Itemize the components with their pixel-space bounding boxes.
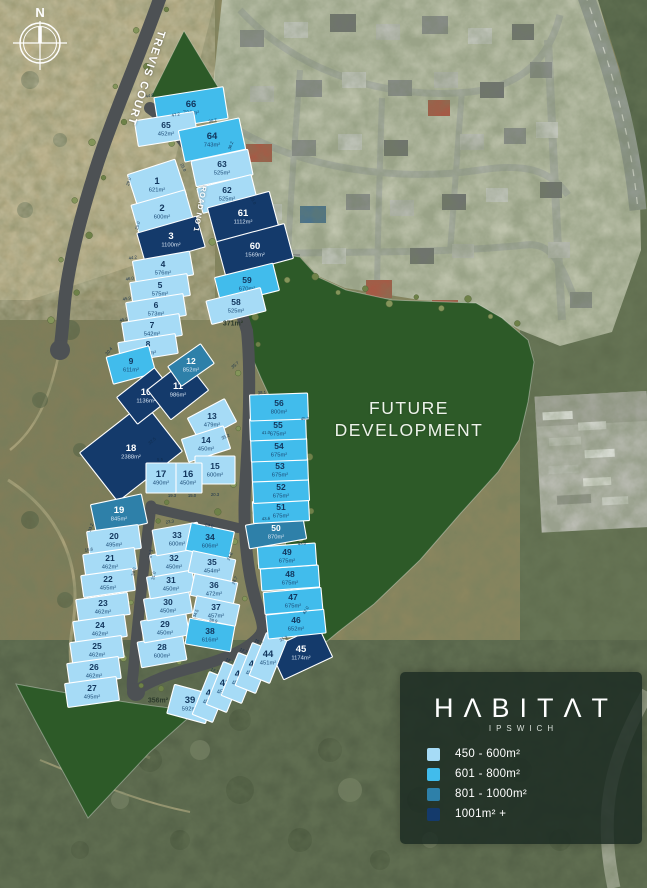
legend-label: 450 - 600m² xyxy=(455,748,520,760)
lot-number: 35 xyxy=(207,557,217,567)
lot-area: 576m² xyxy=(155,271,172,277)
lot-area: 455m² xyxy=(100,586,117,592)
street-tree xyxy=(214,509,221,516)
lot-number: 53 xyxy=(275,461,285,471)
lot-number: 4 xyxy=(161,259,166,269)
future-development-label: FUTURE DEVELOPMENT xyxy=(335,397,484,441)
lot-number: 38 xyxy=(205,626,215,636)
lot-number: 32 xyxy=(169,553,179,563)
lot-number: 14 xyxy=(201,435,211,445)
dimension-label: 43.0 xyxy=(298,541,307,547)
lot-area: 675m² xyxy=(271,453,288,459)
lot-number: 26 xyxy=(89,662,99,672)
street-tree xyxy=(164,500,169,505)
lot-47[interactable]: 47675m² xyxy=(263,588,323,615)
street-tree xyxy=(414,295,419,300)
street-tree xyxy=(312,273,319,280)
lot-49[interactable]: 49675m² xyxy=(257,543,316,569)
street-tree xyxy=(164,7,169,12)
street-tree xyxy=(156,519,161,524)
lot-number: 60 xyxy=(250,241,261,252)
lot-area: 450m² xyxy=(160,609,177,615)
legend-panel: HΛBITΛT IPSWICH 450 - 600m²601 - 800m²80… xyxy=(400,672,642,844)
lot-number: 37 xyxy=(211,602,221,612)
lot-area: 743m² xyxy=(204,143,221,149)
lot-number: 25 xyxy=(92,641,102,651)
lot-area: 450m² xyxy=(198,447,215,453)
lot-number: 29 xyxy=(160,619,170,629)
street-tree xyxy=(362,286,368,292)
lot-area: 525m² xyxy=(228,309,245,315)
lot-52[interactable]: 52675m² xyxy=(252,479,309,504)
lot-area: 616m² xyxy=(202,638,219,644)
street-tree xyxy=(336,290,341,295)
street-tree xyxy=(133,27,139,33)
lot-number: 46 xyxy=(291,615,301,625)
street-tree xyxy=(386,300,393,307)
lot-area: 452m² xyxy=(158,132,175,138)
dimension-label: 38.1 xyxy=(257,390,266,396)
lot-17[interactable]: 17490m² xyxy=(146,463,176,493)
lot-area: 490m² xyxy=(153,481,170,487)
lot-56[interactable]: 56800m² xyxy=(250,393,309,421)
lot-number: 55 xyxy=(273,420,283,430)
lot-number: 13 xyxy=(207,411,217,421)
street-tree xyxy=(86,232,93,239)
legend-swatch xyxy=(427,808,440,821)
legend-rows: 450 - 600m²601 - 800m²801 - 1000m²1001m²… xyxy=(427,747,642,821)
street-tree xyxy=(113,84,118,89)
street-tree xyxy=(235,370,241,376)
lot-number: 44 xyxy=(263,649,274,660)
estate-masterplan: 66726m²65452m²64743m²63525m²62525m²61111… xyxy=(0,0,647,888)
lot-48[interactable]: 48675m² xyxy=(260,565,319,591)
legend-item: 801 - 1000m² xyxy=(427,787,642,801)
street-tree xyxy=(89,139,96,146)
lot-area: 495m² xyxy=(84,695,101,701)
lot-number: 50 xyxy=(271,523,281,533)
lot-number: 7 xyxy=(150,320,155,330)
street-tree xyxy=(256,342,261,347)
lot-number: 61 xyxy=(238,208,249,219)
lot-area: 454m² xyxy=(204,569,221,575)
lot-area: 472m² xyxy=(206,592,223,598)
lot-number: 52 xyxy=(276,482,286,492)
lot-16[interactable]: 16450m² xyxy=(174,463,202,493)
street-tree xyxy=(139,683,144,688)
lot-number: 22 xyxy=(103,574,113,584)
street-tree xyxy=(59,257,64,262)
legend-swatch xyxy=(427,768,440,781)
lot-number: 27 xyxy=(87,683,97,693)
legend-swatch xyxy=(427,748,440,761)
lot-area: 675m² xyxy=(270,432,287,438)
street-tree xyxy=(158,686,164,692)
lot-number: 6 xyxy=(154,300,159,310)
lot-number: 51 xyxy=(276,502,286,512)
lot-number: 17 xyxy=(156,469,167,480)
lot-number: 21 xyxy=(105,553,115,563)
street-tree xyxy=(284,277,290,283)
lot-number: 54 xyxy=(274,441,284,451)
lot-number: 33 xyxy=(172,530,182,540)
lot-area: 800m² xyxy=(271,410,288,416)
lot-number: 66 xyxy=(186,99,197,110)
lot-number: 16 xyxy=(183,469,194,480)
lot-area: 675m² xyxy=(282,581,299,587)
street-tree xyxy=(209,239,216,246)
lot-number: 12 xyxy=(186,356,196,366)
lot-area: 675m² xyxy=(273,514,290,520)
compass-rose: N xyxy=(0,0,80,86)
dimension-label: 20.3 xyxy=(211,492,220,497)
lot-number: 45 xyxy=(296,644,307,655)
lot-number: 9 xyxy=(129,356,134,366)
lot-area: 600m² xyxy=(154,654,171,660)
lot-area: 600m² xyxy=(169,542,186,548)
legend-label: 1001m² + xyxy=(455,808,506,820)
street-tree xyxy=(242,596,247,601)
lot-area: 462m² xyxy=(102,565,119,571)
lot-number: 39 xyxy=(185,695,196,706)
lot-number: 36 xyxy=(209,580,219,590)
lot-number: 5 xyxy=(158,280,163,290)
lot-area: 495m² xyxy=(106,543,123,549)
lot-number: 34 xyxy=(205,532,215,542)
green-area-size-label: 371m² xyxy=(223,321,243,328)
legend-item: 1001m² + xyxy=(427,807,642,821)
lot-area: 462m² xyxy=(92,632,109,638)
lot-area: 675m² xyxy=(285,604,302,610)
lot-area: 611m² xyxy=(123,368,139,374)
lot-area: 462m² xyxy=(95,610,112,616)
compass-needle xyxy=(38,27,42,43)
dimension-label: 41.0 xyxy=(262,430,271,435)
dimension-label: 15.0 xyxy=(188,493,197,498)
lot-number: 3 xyxy=(168,231,173,242)
legend-label: 601 - 800m² xyxy=(455,768,520,780)
lot-number: 31 xyxy=(166,575,176,585)
lot-area: 450m² xyxy=(180,481,197,487)
lot-number: 2 xyxy=(159,203,164,214)
lot-number: 58 xyxy=(231,297,241,307)
lot-number: 23 xyxy=(98,598,108,608)
lot-area: 1174m² xyxy=(291,656,310,662)
lot-area: 450m² xyxy=(166,565,183,571)
lot-number: 49 xyxy=(282,547,292,557)
lot-area: 450m² xyxy=(163,587,180,593)
lot-number: 15 xyxy=(210,461,220,471)
street-tree xyxy=(236,426,241,431)
street-tree xyxy=(488,314,493,319)
lot-area: 600m² xyxy=(154,215,171,221)
lot-number: 24 xyxy=(95,620,105,630)
lot-area: 986m² xyxy=(170,393,187,399)
lot-number: 64 xyxy=(207,131,218,142)
dimension-label: 19.3 xyxy=(168,493,177,498)
lot-number: 18 xyxy=(126,443,137,454)
lot-area: 462m² xyxy=(89,653,106,659)
lot-area: 852m² xyxy=(183,368,200,374)
lot-number: 48 xyxy=(285,569,295,579)
lot-number: 30 xyxy=(163,597,173,607)
lot-number: 28 xyxy=(157,642,167,652)
lot-area: 652m² xyxy=(288,627,305,633)
legend-swatch xyxy=(427,788,440,801)
lot-area: 621m² xyxy=(149,188,166,194)
lot-area: 675m² xyxy=(272,473,289,479)
lot-number: 63 xyxy=(217,159,227,169)
brand-sub-label: IPSWICH xyxy=(400,724,642,733)
lot-number: 19 xyxy=(114,505,125,516)
compass-north-label: N xyxy=(35,5,44,20)
lot-number: 1 xyxy=(154,176,160,187)
lot-54[interactable]: 54675m² xyxy=(251,438,308,462)
street-tree xyxy=(48,317,55,324)
legend-item: 601 - 800m² xyxy=(427,767,642,781)
lot-area: 1569m² xyxy=(245,253,265,259)
lot-area: 450m² xyxy=(157,631,174,637)
lot-area: 1100m² xyxy=(161,243,180,249)
street-tree xyxy=(465,296,472,303)
lot-number: 65 xyxy=(161,120,171,130)
legend-item: 450 - 600m² xyxy=(427,747,642,761)
lot-area: 600m² xyxy=(207,473,224,479)
lot-area: 1136m² xyxy=(136,399,155,405)
lot-area: 451m² xyxy=(260,661,277,667)
street-tree xyxy=(514,321,520,327)
street-tree xyxy=(74,290,80,296)
lot-area: 2388m² xyxy=(121,455,141,461)
street-tree xyxy=(72,198,78,204)
lot-area: 606m² xyxy=(202,544,219,550)
lot-area: 675m² xyxy=(279,559,296,565)
dimension-label: 45.0 xyxy=(301,416,310,421)
green-area-size-label: 356m² xyxy=(148,698,168,705)
lot-area: 675m² xyxy=(273,494,290,500)
lot-number: 47 xyxy=(288,592,298,602)
dimension-label: 43.6 xyxy=(262,516,271,521)
lot-number: 62 xyxy=(222,185,232,195)
lot-area: 1112m² xyxy=(234,220,253,226)
lot-number: 20 xyxy=(109,531,119,541)
brand-logo: HΛBITΛT xyxy=(400,694,642,722)
lot-number: 56 xyxy=(274,398,284,408)
dimension-label: 5.5 xyxy=(157,457,164,462)
lot-area: 845m² xyxy=(111,517,128,523)
lot-area: 870m² xyxy=(268,535,285,541)
lot-number: 59 xyxy=(242,275,252,285)
street-tree xyxy=(101,175,106,180)
street-tree xyxy=(439,305,445,311)
lot-area: 525m² xyxy=(214,171,231,177)
legend-label: 801 - 1000m² xyxy=(455,788,527,800)
